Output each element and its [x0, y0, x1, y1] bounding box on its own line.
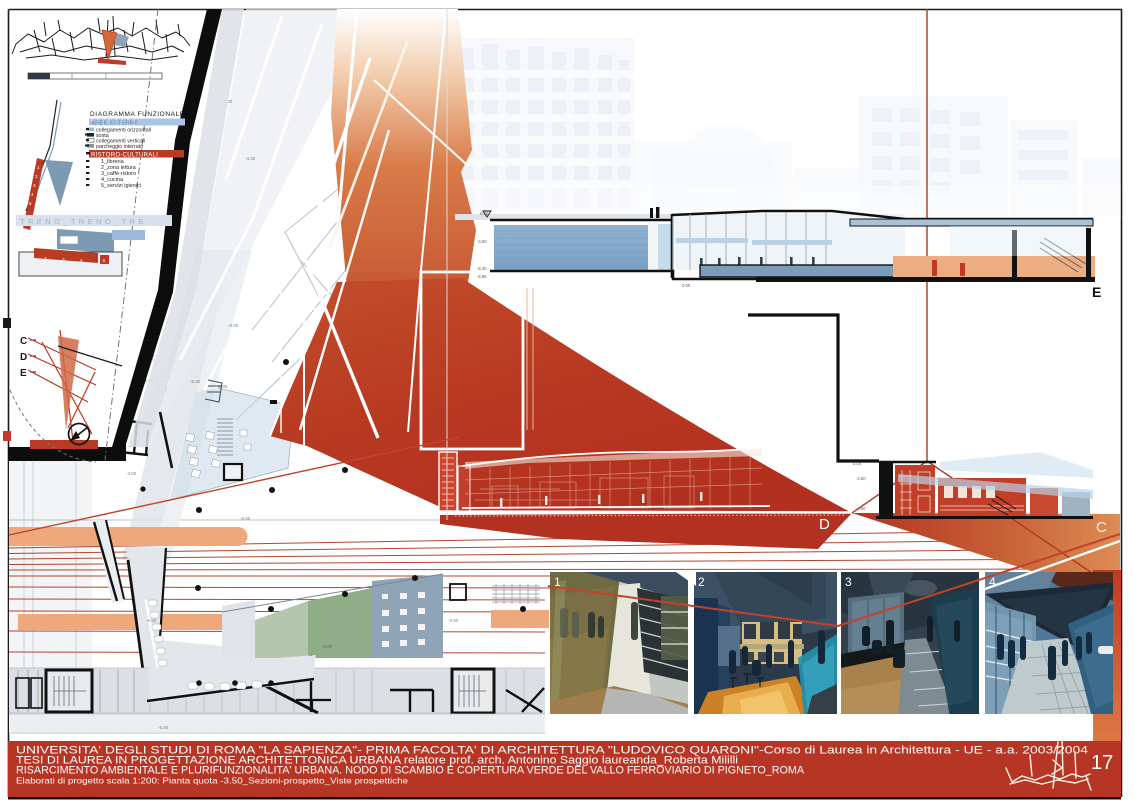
- svg-text:-6.85: -6.85: [477, 274, 487, 279]
- svg-text:-5.50: -5.50: [146, 618, 157, 623]
- svg-text:-5.30: -5.30: [190, 379, 201, 384]
- svg-text:D: D: [20, 352, 27, 363]
- svg-text:0.00: 0.00: [480, 211, 489, 216]
- svg-text:-2.50: -2.50: [856, 476, 866, 481]
- svg-text:5: 5: [103, 258, 106, 264]
- svg-text:0.00: 0.00: [682, 283, 691, 288]
- svg-text:-4.00: -4.00: [126, 471, 137, 476]
- svg-text:-4.50: -4.50: [856, 506, 866, 511]
- svg-text:-5.50: -5.50: [158, 725, 169, 730]
- svg-text:E: E: [1092, 284, 1101, 300]
- svg-text:3: 3: [44, 256, 47, 262]
- svg-text:DIAGRAMMA FUNZIONALE: DIAGRAMMA FUNZIONALE: [90, 111, 185, 118]
- svg-text:3: 3: [845, 575, 852, 589]
- svg-text:RISTORO-CULTURALI: RISTORO-CULTURALI: [91, 153, 158, 159]
- svg-text:AREE ESTERNE: AREE ESTERNE: [91, 121, 138, 127]
- svg-text:Elaborati di progetto scala 1:: Elaborati di progetto scala 1:200: Piant…: [16, 776, 408, 786]
- svg-text:17: 17: [1091, 752, 1113, 774]
- svg-text:1: 1: [37, 165, 40, 170]
- svg-text:E: E: [20, 368, 27, 379]
- svg-text:TRENO_TRENO_TRE: TRENO_TRENO_TRE: [20, 217, 147, 226]
- svg-text:2: 2: [698, 575, 705, 589]
- svg-text:C: C: [1096, 519, 1107, 536]
- svg-text:3: 3: [33, 183, 36, 188]
- svg-text:D: D: [819, 516, 830, 533]
- svg-text:-4.30: -4.30: [245, 156, 256, 161]
- svg-text:-8.80: -8.80: [322, 644, 333, 649]
- svg-text:parcheggio interrato: parcheggio interrato: [96, 144, 143, 150]
- svg-text:-6.00: -6.00: [228, 323, 239, 328]
- svg-text:C: C: [20, 336, 27, 347]
- svg-text:4: 4: [31, 192, 34, 197]
- svg-text:3: 3: [62, 257, 65, 263]
- svg-text:5: 5: [29, 201, 32, 206]
- svg-text:-8.50: -8.50: [240, 516, 251, 521]
- svg-text:-3.50: -3.50: [477, 239, 487, 244]
- svg-text:5_servizi igienici: 5_servizi igienici: [101, 183, 141, 189]
- svg-text:4: 4: [80, 258, 83, 264]
- svg-text:2: 2: [35, 174, 38, 179]
- svg-text:0.00: 0.00: [853, 461, 862, 466]
- svg-text:-3.50: -3.50: [448, 618, 459, 623]
- svg-text:-6.30: -6.30: [477, 266, 487, 271]
